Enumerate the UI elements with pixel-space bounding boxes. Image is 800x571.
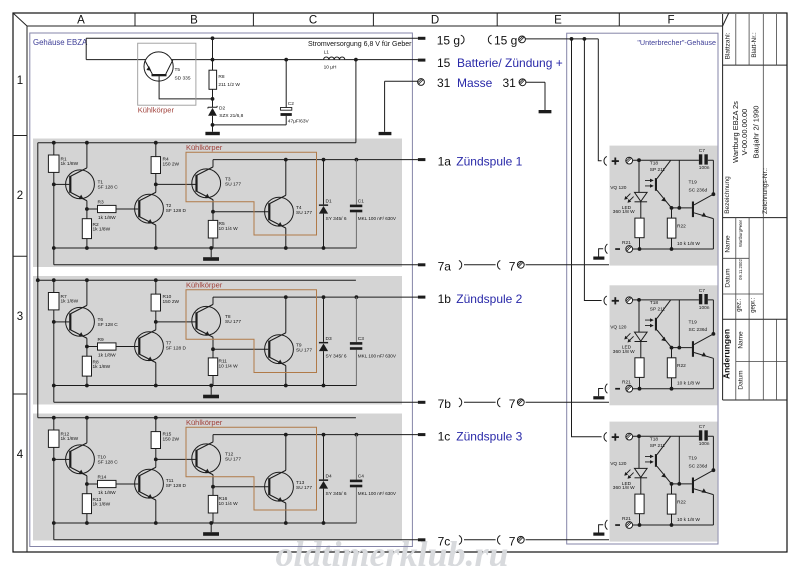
svg-text:V-00.00.00.00: V-00.00.00.00 — [740, 109, 749, 156]
svg-text:D: D — [431, 15, 439, 27]
svg-text:10 1/4 W: 10 1/4 W — [219, 226, 239, 232]
svg-text:1k 1/8W: 1k 1/8W — [93, 364, 111, 370]
svg-text:1k 1/8W: 1k 1/8W — [61, 436, 79, 442]
svg-text:SF 128 D: SF 128 D — [166, 208, 187, 214]
svg-text:SU 177: SU 177 — [296, 348, 312, 354]
svg-text:Name: Name — [725, 235, 732, 253]
svg-text:Batterie/ Zündung +: Batterie/ Zündung + — [457, 56, 563, 70]
svg-text:31: 31 — [503, 76, 517, 90]
svg-text:D1: D1 — [326, 198, 332, 204]
svg-text:A: A — [77, 15, 85, 27]
svg-text:Zündspule 3: Zündspule 3 — [456, 429, 522, 443]
svg-text:7: 7 — [509, 397, 516, 411]
svg-text:MKL 100 nF/ 630V: MKL 100 nF/ 630V — [358, 491, 397, 496]
svg-text:R9: R9 — [98, 337, 104, 343]
svg-text:SY 345/ 6: SY 345/ 6 — [326, 216, 347, 222]
svg-text:Blatt-Nr.:: Blatt-Nr.: — [751, 32, 758, 57]
svg-text:Datum: Datum — [738, 370, 745, 389]
svg-text:15 g: 15 g — [437, 33, 460, 47]
svg-text:R8: R8 — [218, 74, 224, 80]
svg-text:gepr.:: gepr.: — [751, 297, 757, 312]
svg-text:Kühlkörper: Kühlkörper — [186, 418, 223, 427]
svg-text:SU 177: SU 177 — [225, 457, 241, 463]
svg-text:D4: D4 — [326, 473, 332, 479]
svg-text:Name: Name — [738, 331, 745, 349]
svg-text:7: 7 — [509, 534, 516, 548]
svg-text:R3: R3 — [98, 200, 104, 206]
svg-text:C: C — [309, 15, 317, 27]
svg-text:1: 1 — [17, 75, 23, 87]
svg-text:1k 1/8W: 1k 1/8W — [98, 490, 116, 496]
svg-text:B: B — [190, 15, 198, 27]
svg-text:SZX 21/6,8: SZX 21/6,8 — [219, 113, 243, 119]
svg-text:Baujahr 2/ 1990: Baujahr 2/ 1990 — [752, 106, 761, 159]
svg-text:Kühlkörper: Kühlkörper — [186, 143, 223, 152]
svg-text:T5: T5 — [175, 67, 181, 73]
svg-text:15 g: 15 g — [494, 33, 517, 47]
svg-text:1a: 1a — [438, 154, 452, 168]
svg-text:D3: D3 — [326, 336, 332, 342]
svg-text:F: F — [667, 15, 674, 27]
svg-text:SU 177: SU 177 — [296, 485, 312, 491]
svg-text:1k 1/8W: 1k 1/8W — [61, 299, 79, 305]
svg-text:150 2W: 150 2W — [163, 437, 180, 443]
svg-text:150 2W: 150 2W — [163, 299, 180, 305]
svg-text:1k 1/8W: 1k 1/8W — [98, 353, 116, 359]
svg-text:Bezeichnung: Bezeichnung — [724, 176, 731, 214]
svg-text:C1: C1 — [358, 198, 364, 204]
svg-text:1k 1/8W: 1k 1/8W — [93, 502, 111, 508]
svg-text:SF 128 C: SF 128 C — [98, 322, 119, 328]
svg-text:SU 177: SU 177 — [296, 210, 312, 216]
svg-text:1k 1/8W: 1k 1/8W — [61, 161, 79, 167]
svg-text:10 µH: 10 µH — [324, 65, 337, 71]
svg-text:7a: 7a — [438, 259, 452, 273]
svg-text:150 2W: 150 2W — [163, 162, 180, 168]
svg-text:3: 3 — [17, 311, 23, 323]
svg-text:4: 4 — [17, 449, 24, 461]
svg-text:R14: R14 — [98, 475, 107, 481]
svg-text:SU 177: SU 177 — [225, 182, 241, 188]
svg-text:L1: L1 — [324, 50, 330, 56]
svg-text:10 1/4 W: 10 1/4 W — [219, 501, 239, 507]
svg-text:SY 345/ 6: SY 345/ 6 — [326, 491, 347, 497]
svg-text:211 1/2 W: 211 1/2 W — [218, 82, 240, 88]
svg-text:WartburgPeter: WartburgPeter — [738, 219, 743, 247]
svg-text:Datum: Datum — [725, 268, 732, 287]
svg-text:1k 1/8W: 1k 1/8W — [98, 215, 116, 221]
svg-text:SD 335: SD 335 — [175, 76, 191, 82]
svg-text:Zeichnungs-Nr.:: Zeichnungs-Nr.: — [762, 168, 769, 214]
svg-text:2: 2 — [17, 190, 23, 202]
svg-text:"Unterbrecher"-Gehäuse: "Unterbrecher"-Gehäuse — [637, 38, 716, 47]
svg-text:Masse: Masse — [457, 76, 493, 90]
svg-text:SF 128 C: SF 128 C — [98, 184, 119, 190]
svg-text:E: E — [554, 15, 562, 27]
svg-text:MKL 100 nF/ 630V: MKL 100 nF/ 630V — [358, 353, 397, 358]
svg-text:SU 177: SU 177 — [225, 319, 241, 325]
svg-text:gez.:: gez.: — [737, 298, 743, 311]
svg-text:Zündspule 1: Zündspule 1 — [456, 154, 522, 168]
svg-text:1b: 1b — [438, 292, 452, 306]
svg-text:Gehäuse EBZA: Gehäuse EBZA — [33, 38, 88, 47]
svg-text:7b: 7b — [438, 397, 452, 411]
svg-text:1k 1/8W: 1k 1/8W — [93, 227, 111, 233]
svg-text:31: 31 — [437, 76, 451, 90]
svg-text:47µF/63V: 47µF/63V — [288, 119, 310, 125]
svg-text:SF 128 D: SF 128 D — [166, 346, 187, 352]
svg-text:D2: D2 — [219, 105, 225, 111]
svg-text:Stromversorgung 6,8 V für Gebe: Stromversorgung 6,8 V für Geber — [308, 41, 412, 48]
svg-text:SF 128 C: SF 128 C — [98, 459, 119, 465]
svg-text:Kühlkörper: Kühlkörper — [186, 280, 223, 289]
svg-text:Zündspule 2: Zündspule 2 — [456, 292, 522, 306]
svg-text:C2: C2 — [288, 101, 294, 107]
svg-text:Wartburg EBZA 2s: Wartburg EBZA 2s — [731, 101, 740, 163]
svg-text:Kühlkörper: Kühlkörper — [138, 106, 175, 115]
svg-text:15: 15 — [437, 56, 451, 70]
svg-text:SY 345/ 6: SY 345/ 6 — [326, 353, 347, 359]
svg-text:7c: 7c — [438, 534, 451, 548]
svg-text:Änderungen: Änderungen — [722, 329, 732, 379]
svg-text:1c: 1c — [438, 429, 451, 443]
svg-text:Blattzahl:: Blattzahl: — [725, 32, 732, 59]
svg-text:09.11.2002: 09.11.2002 — [738, 259, 743, 280]
svg-text:C3: C3 — [358, 336, 364, 342]
svg-text:C4: C4 — [358, 473, 364, 479]
svg-text:MKL 100 nF/ 630V: MKL 100 nF/ 630V — [358, 216, 397, 221]
svg-text:SF 128 D: SF 128 D — [166, 483, 187, 489]
svg-text:7: 7 — [509, 259, 516, 273]
svg-text:10 1/4 W: 10 1/4 W — [219, 364, 239, 370]
